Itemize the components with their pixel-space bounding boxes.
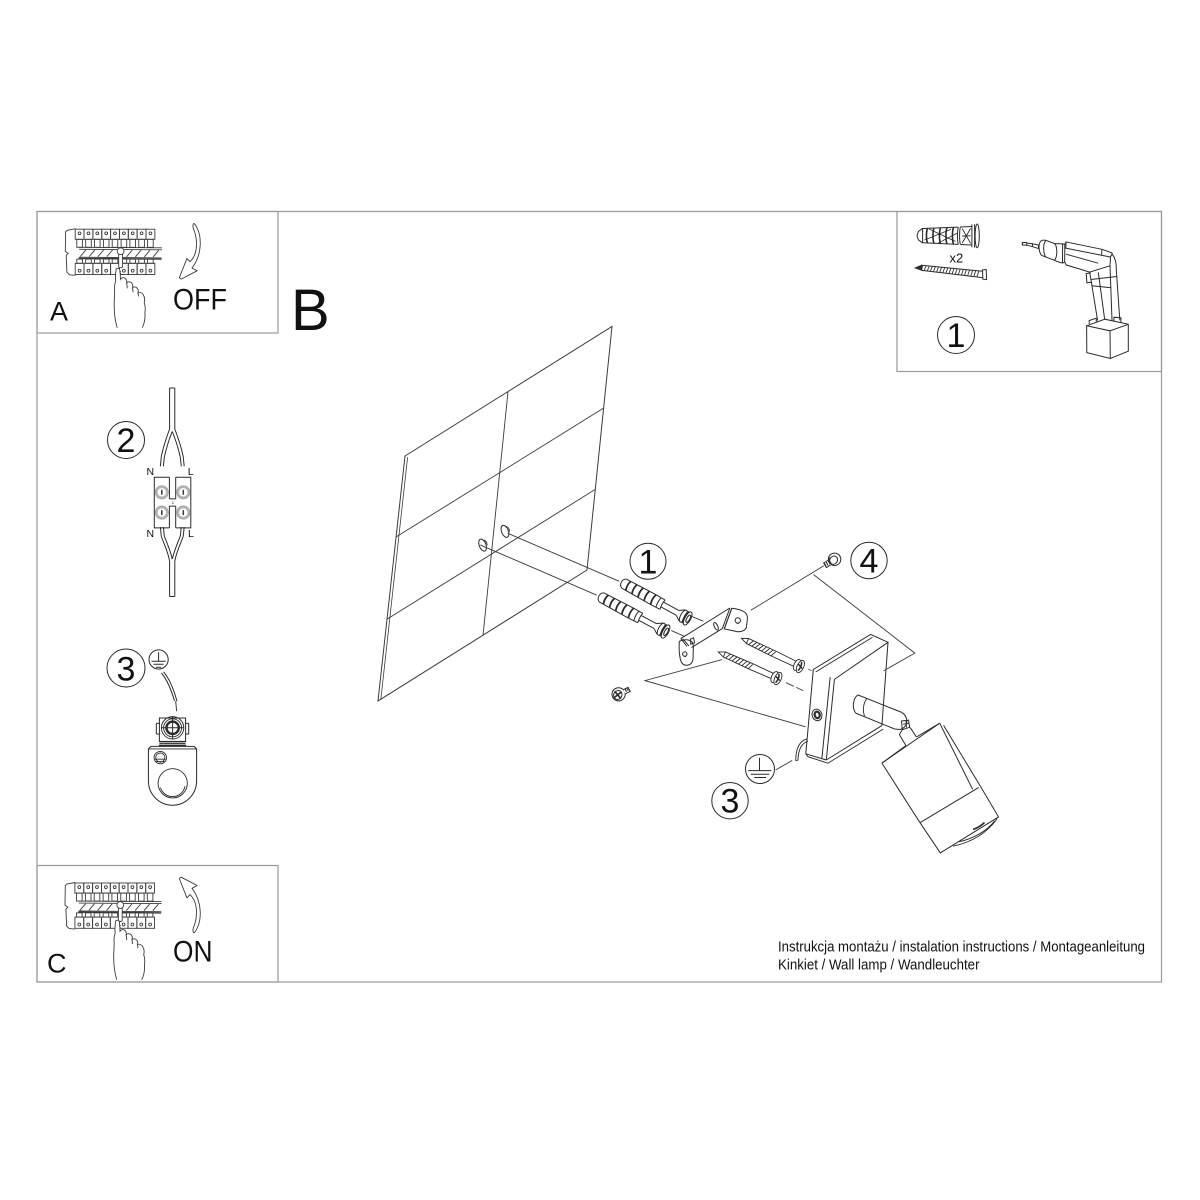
svg-text:1: 1 (947, 317, 966, 355)
svg-text:L: L (188, 528, 194, 540)
svg-text:x2: x2 (950, 251, 964, 266)
svg-text:3: 3 (721, 783, 740, 821)
svg-text:2: 2 (117, 422, 136, 460)
svg-text:Kinkiet / Wall lamp / Wandleuc: Kinkiet / Wall lamp / Wandleuchter (778, 958, 980, 974)
svg-text:Instrukcja montażu / instalati: Instrukcja montażu / instalation instruc… (778, 940, 1145, 956)
svg-text:C: C (47, 949, 67, 979)
svg-text:N: N (147, 466, 155, 478)
svg-text:3: 3 (117, 651, 136, 689)
svg-text:OFF: OFF (173, 284, 227, 317)
svg-text:N: N (147, 528, 155, 540)
svg-text:ON: ON (173, 936, 213, 969)
svg-text:B: B (291, 278, 330, 343)
svg-text:L: L (188, 466, 194, 478)
svg-text:1: 1 (639, 543, 658, 581)
svg-text:4: 4 (860, 543, 879, 581)
svg-text:A: A (50, 297, 68, 327)
